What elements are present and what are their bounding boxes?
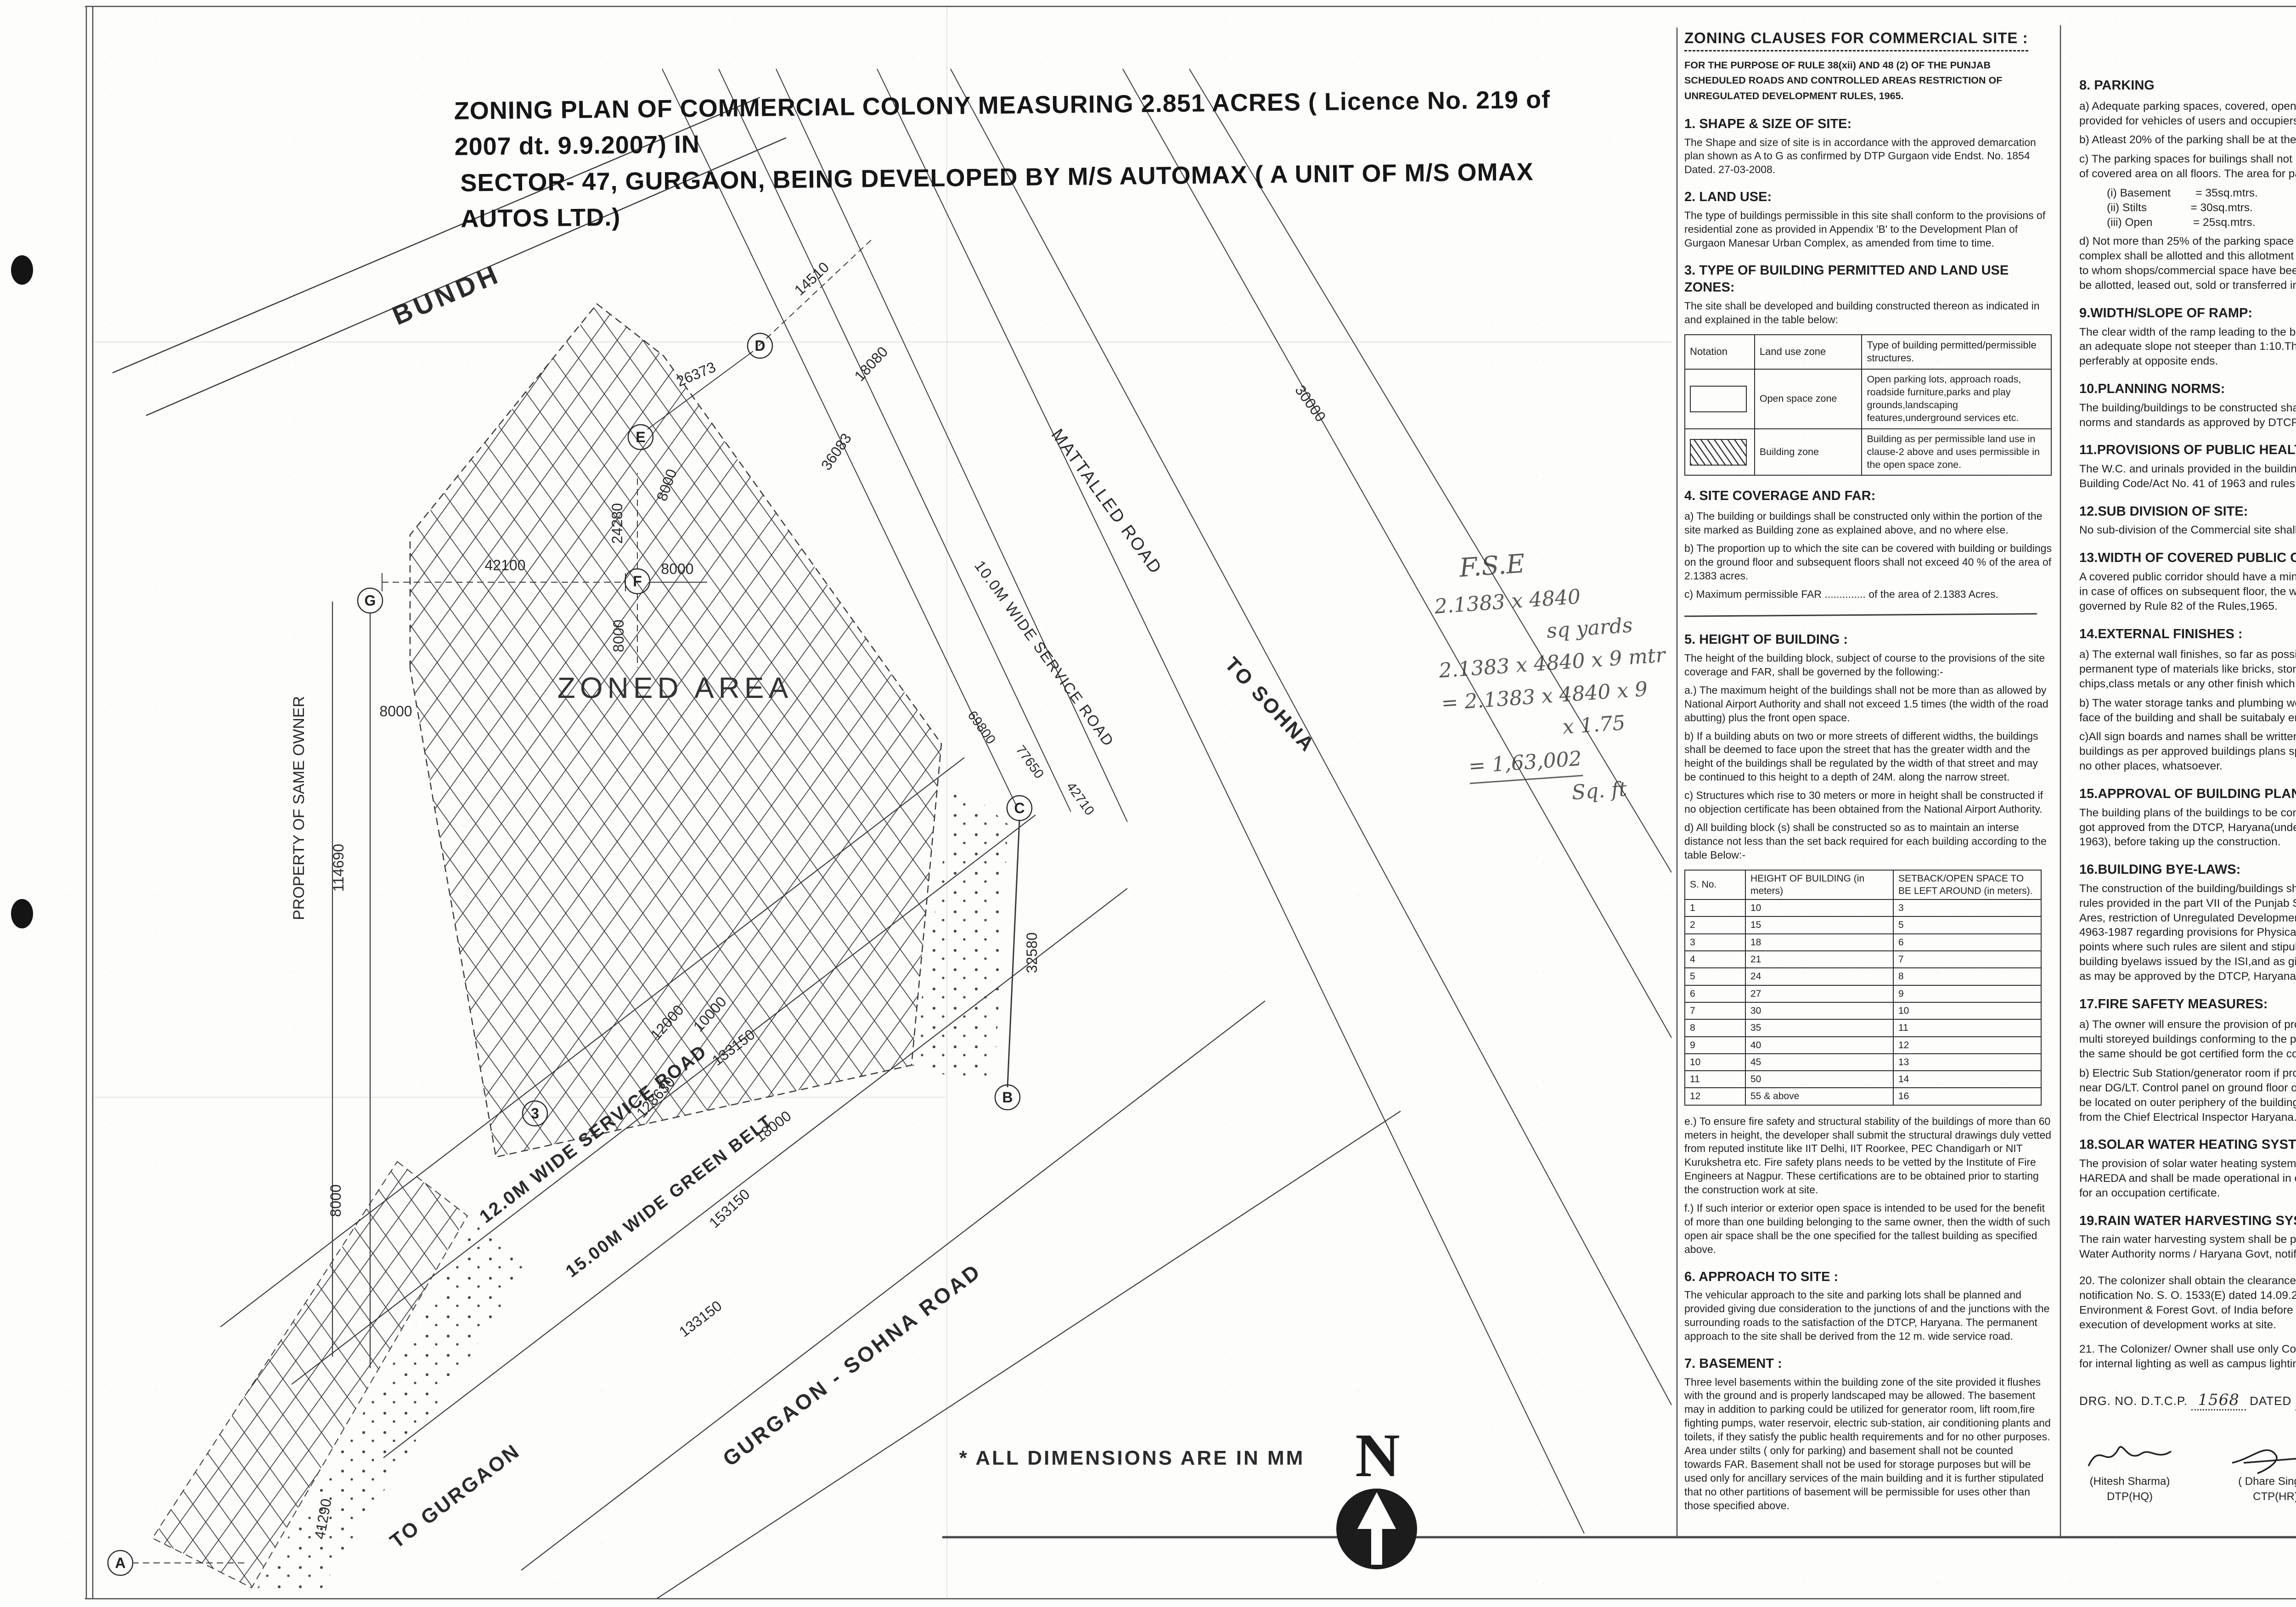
t2-cell: 10 [1893,1002,2041,1019]
t2-cell: 10 [1745,899,1893,916]
t2-cell: 5 [1685,968,1745,985]
clause-14b: b) The water storage tanks and plumbing … [2079,696,2296,725]
to-sohna-label: TO SOHNA [1221,653,1320,757]
signature-block-dtp: (Hitesh Sharma) DTP(HQ) [2079,1438,2180,1504]
t2-cell: 45 [1745,1054,1893,1071]
signatory-name: (Hitesh Sharma) [2079,1474,2180,1489]
t2-cell: 11 [1893,1019,2041,1036]
zoned-area-label: ZONED AREA [557,671,793,704]
t2-header-height: HEIGHT OF BUILDING (in meters) [1745,870,1893,900]
dim-32580: 32580 [1024,933,1040,973]
road-service10-label: 10.0M WIDE SERVICE ROAD [971,557,1118,750]
t2-cell: 18 [1745,934,1893,951]
t2-cell: 7 [1893,951,2041,968]
dim-114690: 114690 [330,844,347,892]
t2-cell: 55 & above [1745,1088,1893,1105]
clause-2-heading: 2. LAND USE: [1684,189,2052,206]
point-3: 3 [531,1105,539,1122]
dim-8000-f2: 8000 [610,619,627,652]
clause-7-heading: 7. BASEMENT : [1684,1355,2052,1373]
clause-17a: a) The owner will ensure the provision o… [2079,1017,2296,1062]
north-letter: N [1355,1422,1400,1490]
road-sohna-label: GURGAON - SOHNA ROAD [718,1259,986,1471]
t2-cell: 4 [1685,951,1745,968]
dim-42100: 42100 [485,557,526,573]
title-line-2: SECTOR- 47, GURGAON, BEING DEVELOPED BY … [460,153,1581,237]
table-row: 115014 [1685,1071,2041,1088]
point-a: A [115,1555,125,1571]
dim-42710: 42710 [1064,780,1097,818]
t1-header-zone: Land use zone [1755,335,1862,369]
clause-3-text: The site shall be developed and building… [1684,299,2052,327]
north-arrow-icon: N [1336,1422,1417,1569]
table-row: 3186 [1685,934,2041,951]
far-strike-line [1684,612,2037,617]
table-row: 1255 & above16 [1685,1088,2041,1105]
t1-header-type: Type of building permitted/permissible s… [1862,335,2051,369]
clause-6-heading: 6. APPROACH TO SITE : [1684,1269,2052,1286]
clause-2-text: The type of buildings permissible in thi… [1684,209,2052,250]
list-item: (i) Basement = 35sq.mtrs. [2107,186,2296,201]
drg-dated-label: DATED [2250,1394,2291,1408]
dim-30000: 30000 [1292,382,1329,425]
clause-1-text: The Shape and size of site is in accorda… [1684,136,2052,177]
signature-row: (Hitesh Sharma) DTP(HQ) ( Dhare Singh ) … [2079,1438,2296,1504]
t2-cell: 6 [1685,985,1745,1002]
t2-cell: 21 [1745,951,1893,968]
zoning-clauses-column: ZONING CLAUSES FOR COMMERCIAL SITE : FOR… [1684,28,2052,1517]
parking-rates-list: (i) Basement = 35sq.mtrs. (ii) Stilts = … [2107,186,2296,230]
clause-10-text: The building/buildings to be constructed… [2079,401,2296,430]
clause-19-text: The rain water harvesting system shall b… [2079,1232,2296,1262]
bundh-label: BUNDH [388,258,505,331]
t2-cell: 30 [1745,1002,1893,1019]
clause-16-heading: 16.BUILDING BYE-LAWS: [2079,861,2296,879]
building-zone-swatch [1690,439,1747,466]
table-row: Open space zone Open parking lots, appro… [1685,369,2051,429]
clause-14-heading: 14.EXTERNAL FINISHES : [2079,626,2296,643]
list-item: (ii) Stilts = 30sq.mtrs. [2107,201,2296,215]
signature-squiggle-dtp [2079,1438,2180,1474]
point-e: E [636,429,645,445]
point-f: F [633,573,642,590]
list-item: (iii) Open = 25sq.mtrs. [2107,215,2296,230]
clause-5d: d) All building block (s) shall be const… [1684,821,2052,862]
clause-8-heading: 8. PARKING [2079,77,2296,95]
clause-20-text: 20. The colonizer shall obtain the clear… [2079,1274,2296,1332]
t2-cell: 7 [1685,1002,1745,1019]
point-c: C [1014,800,1024,816]
t2-cell: 6 [1893,934,2041,951]
clause-4-heading: 4. SITE COVERAGE AND FAR: [1684,488,2052,505]
clause-13-text: A covered public corridor should have a … [2079,570,2296,614]
t1-open-zone: Open space zone [1755,369,1862,429]
t2-cell: 40 [1745,1037,1893,1054]
clause-4b: b) The proportion up to which the site c… [1684,542,2052,583]
setback-table: S. No. HEIGHT OF BUILDING (in meters) SE… [1684,870,2042,1106]
t2-cell: 16 [1893,1088,2041,1105]
t2-cell: 1 [1685,899,1745,916]
clause-12-heading: 12.SUB DIVISION OF SITE: [2079,503,2296,521]
t2-cell: 27 [1745,985,1893,1002]
clause-17b: b) Electric Sub Station/generator room i… [2079,1066,2296,1124]
t2-cell: 24 [1745,968,1893,985]
table-row: 1103 [1685,899,2041,916]
signature-squiggle-ctp [2225,1438,2296,1474]
t2-header-sno: S. No. [1685,870,1745,900]
clause-4a: a) The building or buildings shall be co… [1684,510,2052,537]
t2-cell: 3 [1685,934,1745,951]
rule-note: FOR THE PURPOSE OF RULE 38(xii) AND 48 (… [1684,58,2052,104]
title-line-1: ZONING PLAN OF COMMERCIAL COLONY MEASURI… [454,81,1580,165]
hand-line-5: = 1,63,002 [1468,742,1583,784]
clause-13-heading: 13.WIDTH OF COVERED PUBLIC CORRIDOR: [2079,550,2296,567]
drawing-title: ZONING PLAN OF COMMERCIAL COLONY MEASURI… [454,81,1580,237]
dim-8000-f: 8000 [661,561,693,577]
zoning-clauses-column-right: 8. PARKING a) Adequate parking spaces, c… [2079,77,2296,1504]
clause-17-heading: 17.FIRE SAFETY MEASURES: [2079,996,2296,1013]
land-use-zone-table: Notation Land use zone Type of building … [1684,334,2052,476]
point-b: B [1002,1089,1013,1106]
table-row: Notation Land use zone Type of building … [1685,335,2051,369]
road-mattalled-label: MATTALLED ROAD [1047,426,1166,579]
clause-5e: e.) To ensure fire safety and structural… [1684,1115,2052,1197]
clauses-header: ZONING CLAUSES FOR COMMERCIAL SITE : [1684,28,2028,51]
clause-18-heading: 18.SOLAR WATER HEATING SYSTEM [2079,1136,2296,1154]
table-row: 6279 [1685,985,2041,1002]
dim-8000-left: 8000 [379,703,412,719]
table-row: 94012 [1685,1037,2041,1054]
dim-77650: 77650 [1013,743,1047,781]
dim-8000-bottom: 8000 [327,1184,344,1217]
clause-9-heading: 9.WIDTH/SLOPE OF RAMP: [2079,305,2296,322]
binding-hole-top [11,255,33,285]
t2-cell: 5 [1893,916,2041,933]
parking-basement-value: = 35sq.mtrs. [2195,187,2257,199]
clause-6-text: The vehicular approach to the site and p… [1684,1288,2052,1343]
parking-open-value: = 25sq.mtrs. [2193,216,2255,229]
table-row: 5248 [1685,968,2041,985]
t1-building-swatch-cell [1685,429,1755,476]
clause-11-text: The W.C. and urinals provided in the bui… [2079,462,2296,491]
clause-5b: b) If a building abuts on two or more st… [1684,730,2052,785]
clause-5a: a.) The maximum height of the buildings … [1684,684,2052,725]
t1-building-zone: Building zone [1755,429,1862,476]
signature-block-ctp: ( Dhare Singh ) CTP(HR) [2225,1438,2296,1504]
t2-header-setback: SETBACK/OPEN SPACE TO BE LEFT AROUND (in… [1893,870,2041,900]
clause-8a: a) Adequate parking spaces, covered, ope… [2079,99,2296,129]
dim-26373: 26373 [674,359,718,390]
t1-open-type: Open parking lots, approach roads, roads… [1862,369,2051,429]
clause-14c: c)All sign boards and names shall be wri… [2079,730,2296,774]
t1-open-swatch-cell [1685,369,1755,429]
t2-cell: 12 [1685,1088,1745,1105]
handwritten-calculation: F.S.E 2.1383 x 4840 sq yards 2.1383 x 48… [1403,533,1696,820]
clause-18-text: The provision of solar water heating sys… [2079,1157,2296,1201]
binding-hole-bottom [11,899,33,928]
clause-16-text: The construction of the building/buildin… [2079,882,2296,984]
dim-18080: 18080 [851,343,891,385]
open-space-swatch [1690,386,1747,412]
t2-cell: 2 [1685,916,1745,933]
clause-7-text: Three level basements within the buildin… [1684,1376,2052,1513]
t2-cell: 9 [1893,985,2041,1002]
parking-stilts-value: = 30sq.mtrs. [2190,202,2252,214]
point-d: D [754,337,765,354]
t2-cell: 8 [1685,1019,1745,1036]
dim-69800: 69800 [965,708,998,747]
to-gurgaon-label: TO GURGAON [386,1439,524,1553]
t2-cell: 3 [1893,899,2041,916]
clause-21-text: 21. The Colonizer/ Owner shall use only … [2079,1342,2296,1371]
signatory-name: ( Dhare Singh ) [2225,1474,2296,1489]
clause-8c: c) The parking spaces for builings shall… [2079,152,2296,181]
t1-header-notation: Notation [1685,335,1755,369]
parking-open-label: (iii) Open [2107,216,2152,229]
zoning-plan-sheet: { "title": { "line1": "ZONING PLAN OF CO… [0,0,2296,1607]
clause-3-heading: 3. TYPE OF BUILDING PERMITTED AND LAND U… [1684,262,2052,297]
parking-basement-label: (i) Basement [2107,187,2171,199]
t1-building-type: Building as per permissible land use in … [1862,429,2051,476]
dim-133150-b: 133150 [676,1298,725,1340]
clause-10-heading: 10.PLANNING NORMS: [2079,381,2296,398]
table-row: 73010 [1685,1002,2041,1019]
dimensions-note: * ALL DIMENSIONS ARE IN MM [959,1447,1305,1469]
t2-cell: 11 [1685,1071,1745,1088]
t2-cell: 35 [1745,1019,1893,1036]
t2-cell: 8 [1893,968,2041,985]
parking-stilts-label: (ii) Stilts [2107,202,2147,214]
drg-number-handwritten: 1568 [2191,1391,2246,1410]
table-row: 104513 [1685,1054,2041,1071]
clause-5-intro: The height of the building block, subjec… [1684,652,2052,679]
t2-cell: 13 [1893,1054,2041,1071]
dim-24280: 24280 [609,503,625,544]
clause-12-text: No sub-division of the Commercial site s… [2079,523,2296,538]
property-owner-label: PROPERTY OF SAME OWNER [290,696,308,920]
clause-5f: f.) If such interior or exterior open sp… [1684,1202,2052,1257]
drg-number-line: DRG. NO. D.T.C.P. 1568 DATED 16.4.08 [2079,1390,2296,1410]
t2-cell: 14 [1893,1071,2041,1088]
clause-9-text: The clear width of the ramp leading to t… [2079,325,2296,369]
dim-36083: 36083 [818,430,855,473]
signatory-title: CTP(HR) [2225,1489,2296,1504]
t2-cell: 12 [1893,1037,2041,1054]
clause-8d: d) Not more than 25% of the parking spac… [2079,234,2296,292]
clause-19-heading: 19.RAIN WATER HARVESTING SYSTEM. [2079,1213,2296,1230]
clause-1-heading: 1. SHAPE & SIZE OF SITE: [1684,116,2052,133]
t2-cell: 15 [1745,916,1893,933]
table-row: S. No. HEIGHT OF BUILDING (in meters) SE… [1685,870,2041,900]
clause-11-heading: 11.PROVISIONS OF PUBLIC HEALTH FACILITIE… [2079,442,2296,459]
clause-5-heading: 5. HEIGHT OF BUILDING : [1684,631,2052,649]
table-row: 83511 [1685,1019,2041,1036]
clause-14a: a) The external wall finishes, so far as… [2079,647,2296,691]
table-row: 4217 [1685,951,2041,968]
t2-cell: 9 [1685,1037,1745,1054]
clause-5c: c) Structures which rise to 30 meters or… [1684,789,2052,816]
table-row: 2155 [1685,916,2041,933]
t2-cell: 10 [1685,1054,1745,1071]
clause-15-text: The building plans of the buildings to b… [2079,806,2296,850]
drg-prefix: DRG. NO. D.T.C.P. [2079,1394,2188,1408]
point-g: G [365,592,376,609]
clause-8b: b) Atleast 20% of the parking shall be a… [2079,133,2296,147]
table-row: Building zone Building as per permissibl… [1685,429,2051,476]
signatory-title: DTP(HQ) [2079,1489,2180,1504]
t2-cell: 50 [1745,1071,1893,1088]
clause-4c: c) Maximum permissible FAR .............… [1684,588,2052,601]
clause-15-heading: 15.APPROVAL OF BUILDING PLANS: [2079,786,2296,803]
